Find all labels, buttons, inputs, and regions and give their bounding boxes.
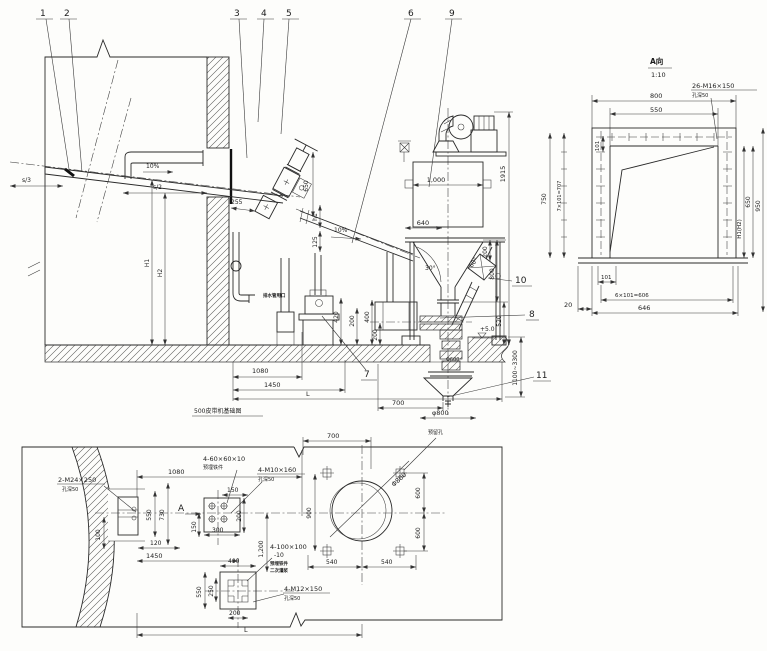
detail-dim-101a: 101 [595, 141, 601, 152]
drain-pipe [231, 232, 255, 303]
plan-m24-note: 孔深50 [62, 486, 78, 493]
detail-view-A: A向 1:10 26-M16×150 孔深50 800 550 101 7×10… [541, 56, 763, 316]
buried-bin [424, 372, 474, 407]
drain-note: 排水管甩口 [263, 292, 286, 299]
plan-dim-100: 100 [95, 529, 102, 541]
detail-dim-20: 20 [564, 301, 572, 309]
plan-p100-thickness: -10 [274, 552, 284, 559]
dim-h1: h1 [312, 213, 319, 221]
dim-200a: 200 [349, 315, 356, 327]
detail-bolts-label: 26-M16×150 [692, 82, 734, 90]
plan-dim-730: 730 [159, 509, 166, 521]
dim-phi800-elev: φ800 [432, 409, 449, 417]
plan-p60-note: 预埋铁件 [203, 464, 223, 471]
detail-dim-650: 650 [745, 196, 752, 208]
plan-dim-540b: 540 [381, 559, 393, 566]
drawing-sheet: 排水管甩口 [0, 0, 767, 651]
dim-1450: 1450 [264, 381, 281, 389]
fan-inlet-cone [433, 141, 459, 152]
plan-dim-540a: 540 [326, 559, 338, 566]
plan-dim-400: 400 [228, 558, 240, 565]
installation-drawing: 排水管甩口 [0, 0, 767, 651]
callout-3: 3 [234, 9, 240, 19]
elevation-view: 排水管甩口 [10, 40, 525, 418]
motor-stand [471, 130, 497, 152]
dim-125: 125 [312, 236, 319, 248]
detail-dim-550: 550 [650, 106, 662, 114]
callout-8: 8 [529, 310, 535, 320]
plan-m12-note: 孔深50 [284, 595, 300, 602]
plan-dim-150a: 150 [227, 487, 239, 494]
wall-hatch-upper [207, 57, 229, 148]
plan-p100-label: 4-100×100 [270, 543, 307, 551]
plan-dim-1200: 1,200 [258, 540, 265, 557]
plan-dim-700: 700 [327, 432, 339, 440]
detail-dim-101b: 101 [601, 275, 612, 281]
detail-bolts-note: 孔深50 [692, 92, 708, 99]
plan-dim-200b: 200 [229, 610, 241, 617]
dim-L-elev: L [306, 390, 310, 398]
plan-dim-L: L [244, 626, 248, 634]
dim-650: 650 [303, 180, 310, 192]
plan-dim-250: 250 [208, 585, 215, 597]
plan-m12-label: 4-M12×150 [284, 585, 322, 593]
detail-title: A向 [650, 56, 663, 66]
pump-unit [277, 253, 339, 345]
callout-10: 10 [515, 276, 527, 286]
level-mark: +5.0 [472, 326, 495, 338]
dim-420: 420 [333, 311, 340, 323]
dim-H1: H1 [144, 259, 151, 268]
phi600-label: Φ600 [446, 357, 459, 363]
plan-dim-600b: 600 [415, 527, 422, 539]
plan-section-A: A [178, 504, 185, 514]
plan-dim-900: 900 [306, 507, 313, 519]
callout-4: 4 [261, 9, 267, 19]
dim-200b: 200 [372, 329, 379, 341]
plan-p100-note1: 预埋铁件 [270, 560, 288, 567]
callout-9: 9 [449, 9, 455, 19]
plan-dim-1080: 1080 [168, 468, 185, 476]
floor-hatch-right [468, 337, 509, 362]
plan-dim-550b: 550 [196, 586, 203, 598]
plan-m24-label: 2-M24×250 [58, 476, 96, 484]
callout-1: 1 [40, 9, 46, 19]
dim-400: 400 [364, 311, 371, 323]
dim-s3: s/3 [22, 177, 31, 184]
detail-frame [578, 128, 748, 263]
detail-dim-800: 800 [650, 92, 662, 100]
plan-p60-label: 4-60×60×10 [203, 455, 245, 463]
vent-pipe [125, 150, 203, 179]
plan-p100-note2: 二次灌浆 [270, 567, 288, 574]
callout-5: 5 [286, 9, 292, 19]
dim-255: 255 [231, 199, 243, 206]
curved-wall [72, 447, 114, 627]
detail-dim-hh: H1(H2) [737, 219, 743, 239]
detail-dim-750: 750 [541, 193, 548, 205]
level-label: +5.0 [480, 326, 495, 333]
dim-520: 520 [496, 315, 503, 327]
dim-700-elev: 700 [392, 399, 404, 407]
angle-30: 30° [425, 265, 436, 272]
plan-m10-label: 4-M10×160 [258, 466, 296, 474]
slope-b: 10% [334, 227, 348, 234]
callout-6: 6 [408, 9, 414, 19]
detail-dim-646: 646 [638, 304, 650, 312]
break-symbol [28, 262, 40, 276]
dim-1915: 1915 [499, 166, 507, 183]
fan-scroll [449, 115, 473, 139]
fan-base-plate [436, 152, 506, 156]
floor-hatch-left [45, 345, 430, 362]
dim-s2: s/2 [153, 184, 162, 191]
plan-m10-note: 孔深50 [258, 476, 274, 483]
drain-ball-valve [231, 261, 241, 271]
plan-view: 2-M24×250 孔深50 100 550 730 120 1080 A 4-… [22, 429, 502, 638]
wall-hatch-lower [207, 197, 229, 345]
valve-cluster [255, 139, 327, 219]
detail-dim-950: 950 [755, 200, 762, 212]
callout-7: 7 [364, 370, 370, 380]
note-500: 500皮带机基础图 [194, 407, 241, 415]
detail-scale: 1:10 [651, 71, 666, 79]
plan-dim-200a: 200 [236, 510, 243, 522]
plan-dim-150b: 150 [191, 521, 198, 533]
plan-dim-300: 300 [212, 527, 224, 534]
plan-dim-550a: 550 [146, 509, 153, 521]
plan-dim-120: 120 [150, 540, 162, 547]
dim-1080: 1080 [252, 367, 269, 375]
detail-dim-7x101: 7×101=707 [557, 181, 563, 212]
dim-H2: H2 [157, 269, 164, 278]
belt-centerlines [76, 60, 131, 222]
plan-dim-600a: 600 [415, 487, 422, 499]
dim-200r: 200 [482, 246, 489, 258]
callout-2: 2 [64, 9, 70, 19]
plan-phi800: Φ800 [390, 471, 408, 489]
plan-hole-note: 预留孔 [428, 429, 443, 436]
plan-dim-1450: 1450 [146, 552, 163, 560]
detail-dim-6x101: 6×101=606 [615, 293, 649, 299]
callout-11: 11 [536, 371, 547, 381]
dim-640: 640 [417, 219, 429, 227]
slope-a: 10% [146, 163, 160, 170]
